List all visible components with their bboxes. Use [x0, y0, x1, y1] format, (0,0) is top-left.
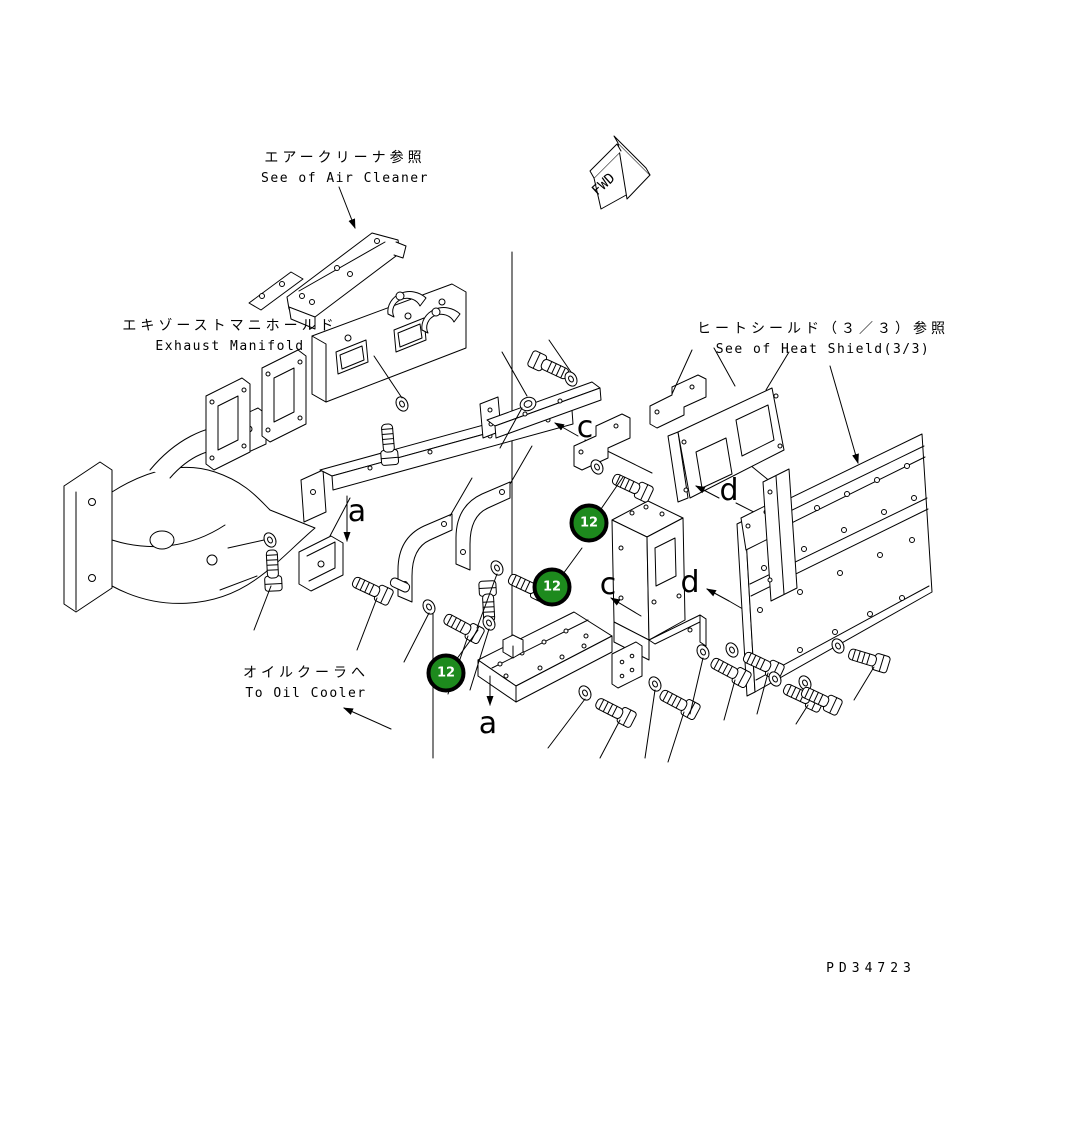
air-cleaner-label-jp: エアークリーナ参照 — [261, 147, 429, 167]
air-cleaner-label: エアークリーナ参照 See of Air Cleaner — [261, 147, 429, 186]
heat-shield-label-en: See of Heat Shield(3/3) — [697, 342, 949, 357]
balloon-number: 12 — [543, 580, 561, 595]
u-bracket — [299, 536, 343, 591]
balloon-number: 12 — [437, 666, 455, 681]
callout-letter-d: d — [719, 476, 738, 506]
callout-letter-a: a — [348, 497, 366, 527]
balloon-number: 12 — [580, 516, 598, 531]
exhaust-manifold-label: エキゾーストマニホールド Exhaust Manifold — [122, 315, 337, 354]
oil-cooler-label-jp: オイルクーラへ — [243, 662, 369, 682]
heat-shield-panel — [737, 434, 932, 696]
callout-letter-c: c — [577, 413, 594, 443]
arch-bracket-right — [456, 482, 510, 570]
air-cleaner-label-en: See of Air Cleaner — [261, 171, 429, 186]
oil-cooler-label-en: To Oil Cooler — [243, 686, 369, 701]
callout-letter-d: d — [680, 568, 699, 598]
heat-shield-label-jp: ヒートシールド（３／３）参照 — [697, 318, 949, 338]
callout-letter-a: a — [479, 709, 497, 739]
part-balloon[interactable]: 12 — [533, 568, 572, 607]
z-bracket-upper — [650, 375, 706, 428]
exploded-view-drawing: FWD — [0, 0, 1082, 1124]
exhaust-manifold-label-en: Exhaust Manifold — [122, 339, 337, 354]
part-balloon[interactable]: 12 — [427, 654, 466, 693]
fwd-arrow-icon: FWD — [589, 136, 650, 209]
callout-letter-c: c — [600, 570, 617, 600]
oil-cooler-label: オイルクーラへ To Oil Cooler — [243, 662, 369, 701]
heat-shield-label: ヒートシールド（３／３）参照 See of Heat Shield(3/3) — [697, 318, 949, 357]
parts-diagram-page: FWD エアークリーナ参照 See of Air Cleaner エキゾーストマ… — [0, 0, 1082, 1124]
part-balloon[interactable]: 12 — [570, 504, 609, 543]
drawing-number: PD34723 — [826, 961, 916, 976]
exhaust-manifold-label-jp: エキゾーストマニホールド — [122, 315, 337, 335]
